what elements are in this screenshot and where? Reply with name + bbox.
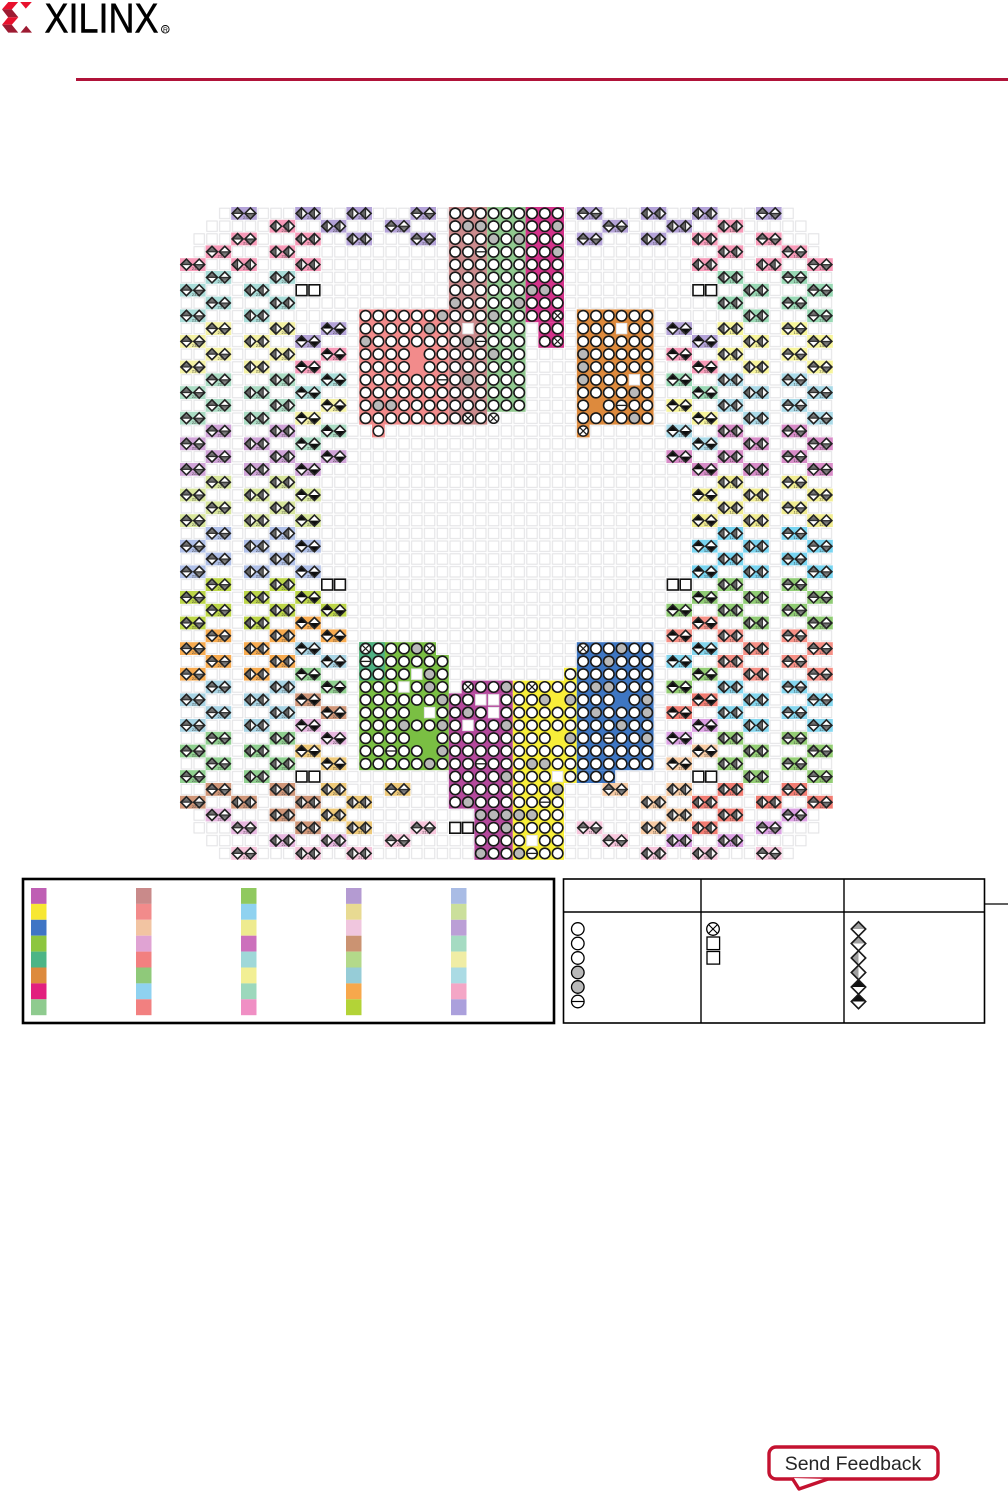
svg-text:Send Feedback: Send Feedback bbox=[785, 1453, 922, 1475]
